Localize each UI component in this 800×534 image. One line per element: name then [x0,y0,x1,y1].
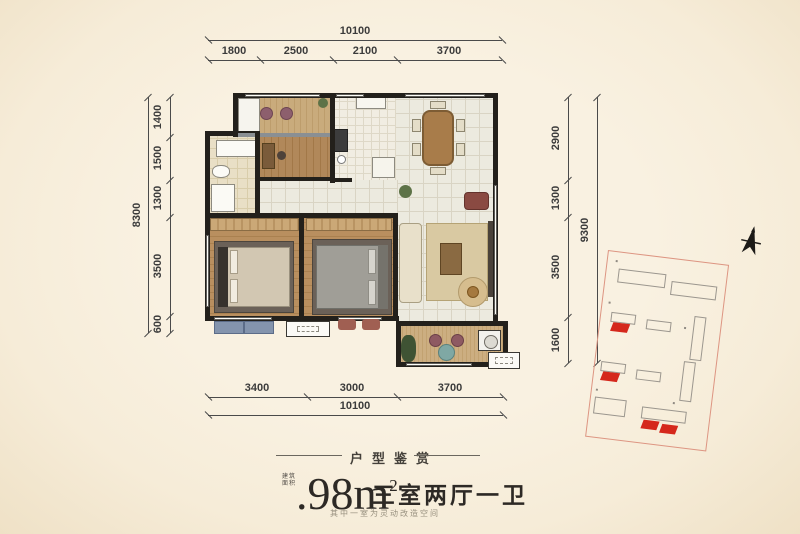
site-dot [684,327,686,329]
dim-seg-label: 3700 [422,382,478,394]
ac-platform [488,352,520,369]
building [593,397,627,418]
wall [330,93,335,183]
counter [372,157,395,178]
building [679,361,696,402]
pillow [230,250,238,274]
dining-table [422,110,454,166]
highlighted-unit [600,371,620,382]
dining-chair [456,119,465,132]
dining-chair [430,101,446,109]
pillow [368,280,376,305]
bed [218,247,290,307]
building [635,369,661,382]
dim-line [208,415,503,416]
dim-seg-label: 3000 [324,382,380,394]
dim-seg-label: 3400 [229,382,285,394]
pillow [368,249,376,274]
site-dot [596,389,598,391]
site-dot [673,402,675,404]
dim-seg-label: 2100 [337,45,393,57]
dim-line [568,97,569,363]
rooms-text: 三室两厅一卫 [372,476,528,510]
wall [393,213,398,321]
dim-seg-label: 1300 [550,176,562,220]
dim-seg-label: 1300 [152,176,164,220]
site-plan [585,250,729,451]
dim-total-label: 8300 [131,193,143,237]
ac-unit-outline [495,357,513,364]
headboard [218,247,228,307]
north-arrow-icon [738,224,764,260]
floorplan-page: 10100 1800 2500 2100 3700 3400 3000 3700… [0,0,800,534]
desk-chair [277,151,286,160]
dim-seg-label: 1800 [206,45,262,57]
side-table [467,286,479,298]
pouf [280,107,293,120]
caption-rule-right [414,455,480,456]
desk [262,143,275,169]
plant [318,98,328,108]
sofa [399,223,422,303]
washing-machine [478,330,501,351]
dining-chair [456,143,465,156]
dim-line [597,97,598,363]
window [405,94,485,97]
toilet [212,165,230,178]
dining-chair [412,143,421,156]
building [646,319,672,332]
headboard [378,245,388,309]
vanity-sink [216,140,256,157]
coffee-table [440,243,462,275]
wall [396,321,505,326]
highlighted-unit [610,322,630,333]
balcony-chair [451,334,464,347]
dining-chair [430,167,446,175]
dim-line [208,397,503,398]
balcony-table [438,344,455,361]
building [617,268,666,288]
floor-plan [200,85,520,375]
wardrobe [306,218,392,231]
dim-total-label: 10100 [327,400,383,412]
balcony-railing [406,363,472,366]
window [206,235,209,307]
stove [334,129,348,152]
plant [399,185,412,198]
bay-window [214,317,272,320]
building [670,281,717,301]
wall [255,177,333,181]
window-wall [238,133,330,137]
dim-total-label: 10100 [327,25,383,37]
wardrobe [210,218,299,231]
wall [255,131,260,218]
dim-seg-label: 3500 [152,244,164,288]
section-title: 户型鉴赏 [350,448,438,467]
dim-seg-label: 2500 [268,45,324,57]
wall [299,213,304,321]
building [689,316,706,361]
ac-unit-outline [297,326,319,332]
highlighted-unit [640,420,659,431]
area-prefix: 建筑 面积 [282,474,296,488]
dim-seg-label: 3700 [421,45,477,57]
window [336,94,364,97]
pouf [260,107,273,120]
site-dot [616,260,618,262]
dim-line [208,60,502,61]
window [494,185,497,315]
site-dot [608,301,610,303]
shower [211,184,235,212]
hallway-floor [258,180,398,216]
armchair [464,192,489,210]
flower-box [338,319,356,330]
flower-box [362,319,380,330]
wall [396,321,401,367]
dim-seg-label: 2900 [550,116,562,160]
window [245,94,320,97]
dim-seg-label: 1400 [152,95,164,139]
plant [401,335,416,362]
pillow [230,279,238,303]
dim-line [148,97,149,333]
dim-line [208,40,502,41]
dim-seg-label: 1500 [152,136,164,180]
caption-note: 其中一室为灵动改造空间 [330,508,440,519]
dim-total-label: 9300 [579,208,591,252]
washer-drum [484,335,498,349]
wall [330,178,352,182]
kitchen-sink [337,155,346,164]
dim-seg-label: 1600 [550,318,562,362]
dim-seg-label: 3500 [550,245,562,289]
highlighted-unit [659,424,678,435]
dining-chair [412,119,421,132]
dim-seg-label: 600 [152,302,164,346]
cabinet [238,98,260,135]
caption-rule-left [276,455,342,456]
ac-platform [286,321,330,337]
window-seat-cushions [214,321,274,334]
